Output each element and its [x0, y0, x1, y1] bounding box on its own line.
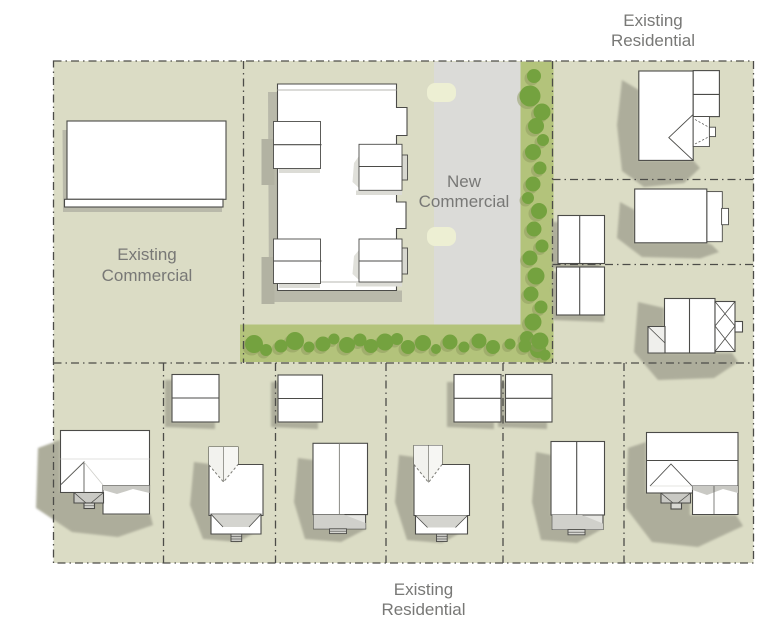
svg-text:New: New	[447, 172, 482, 191]
svg-text:Residential: Residential	[381, 600, 465, 619]
svg-text:Commercial: Commercial	[419, 192, 510, 211]
svg-text:Residential: Residential	[611, 31, 695, 50]
svg-text:Existing: Existing	[117, 245, 177, 264]
svg-text:Commercial: Commercial	[102, 266, 193, 285]
svg-text:Existing: Existing	[394, 580, 454, 599]
svg-text:Existing: Existing	[623, 11, 683, 30]
